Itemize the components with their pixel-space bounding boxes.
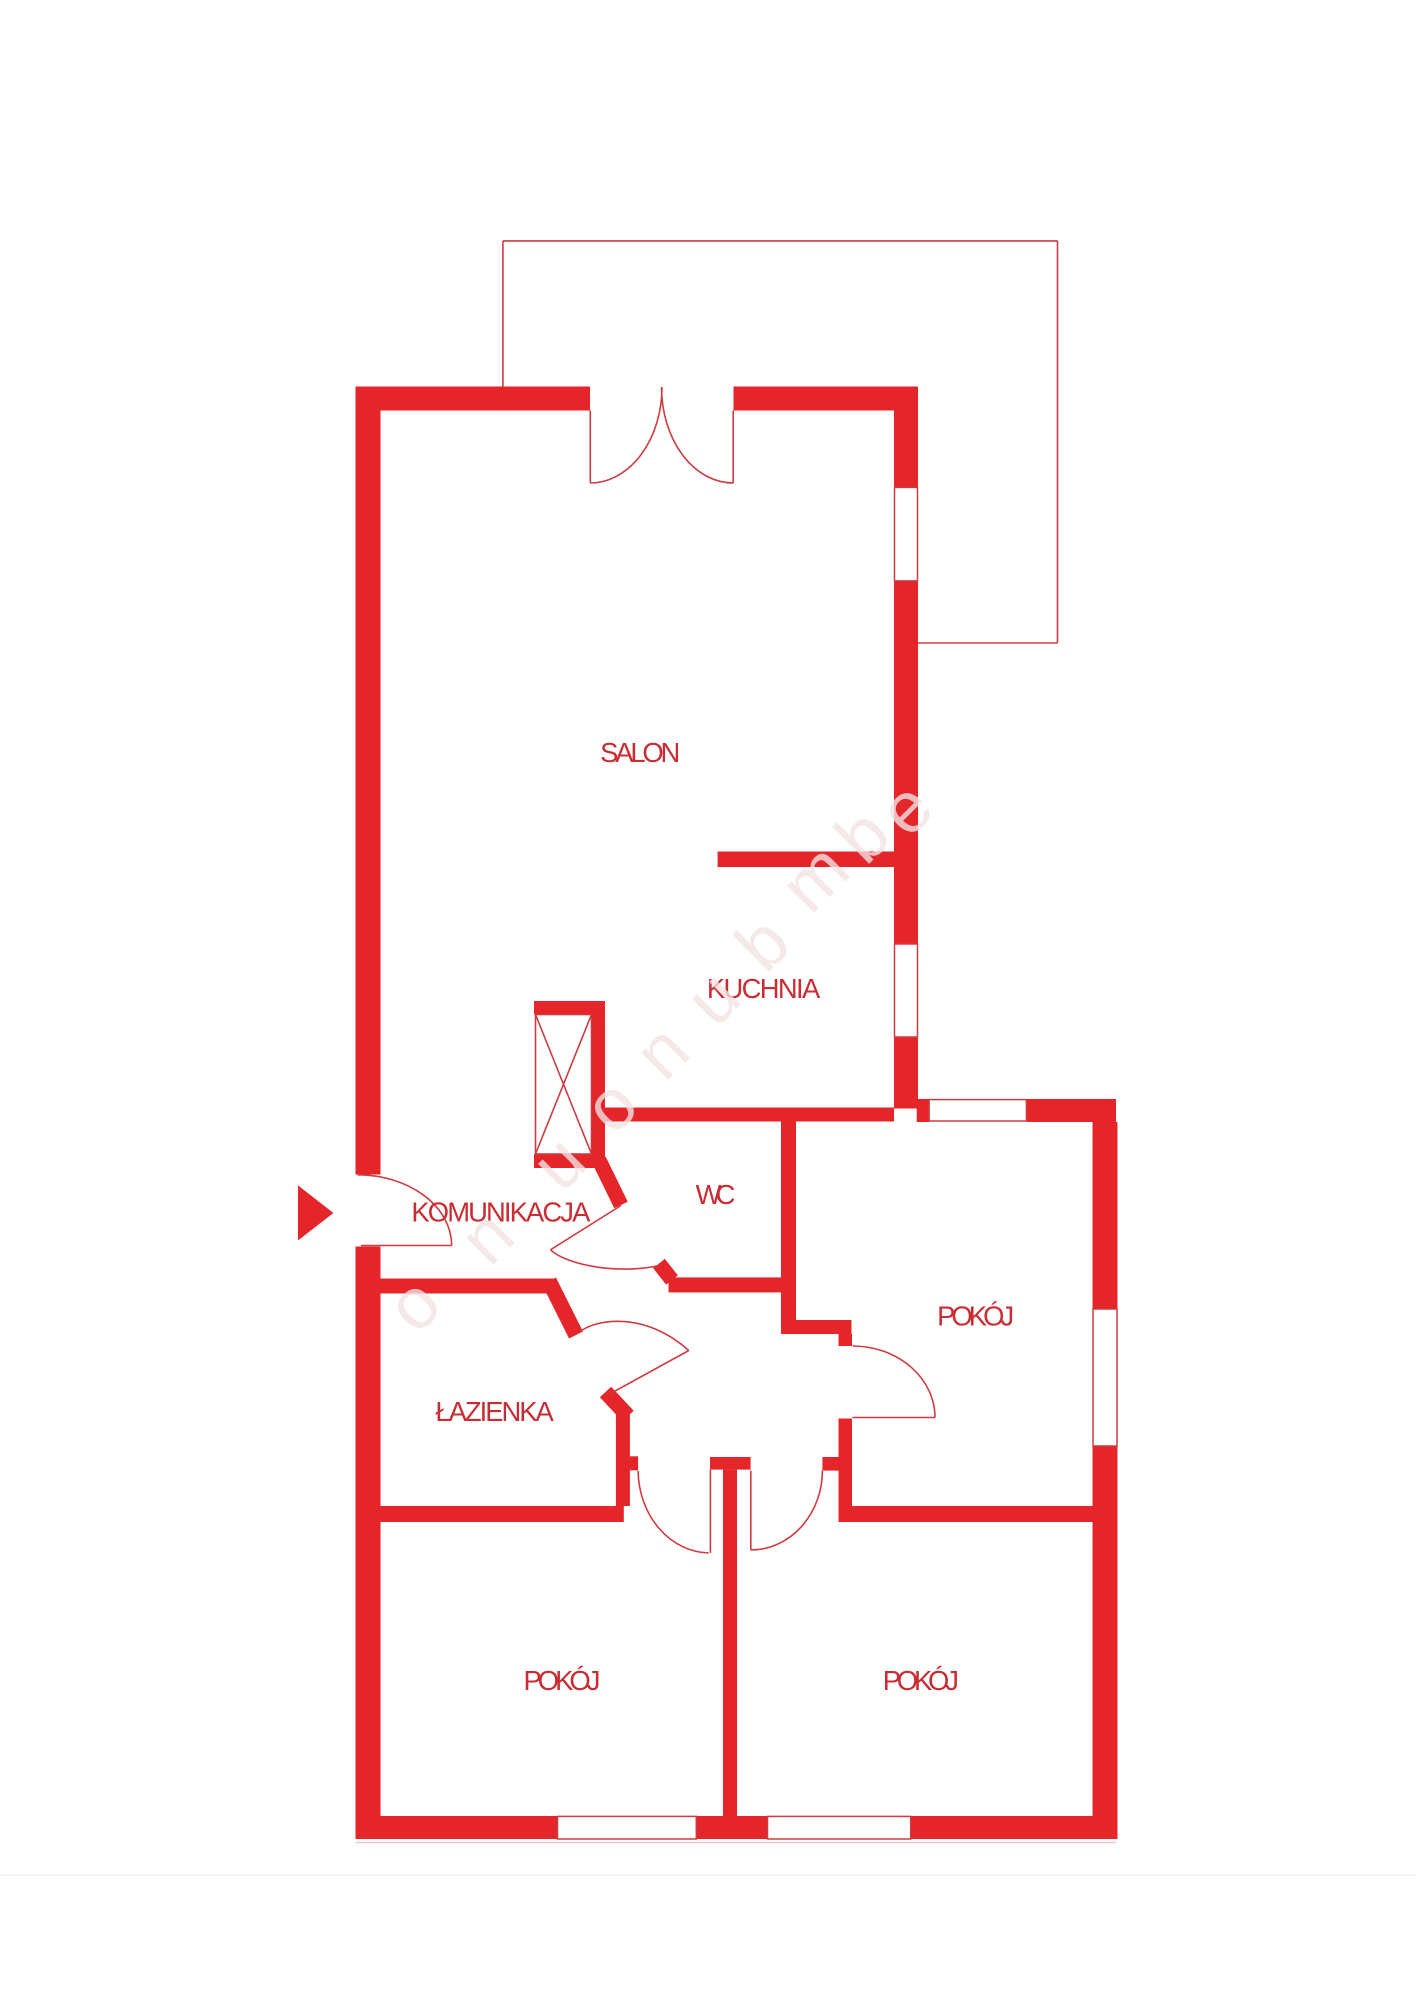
svg-text:ŁAZIENKA: ŁAZIENKA xyxy=(435,1396,554,1427)
svg-text:KOMUNIKACJA: KOMUNIKACJA xyxy=(411,1197,591,1228)
svg-text:POKÓJ: POKÓJ xyxy=(937,1300,1014,1331)
svg-text:POKÓJ: POKÓJ xyxy=(524,1665,601,1696)
svg-text:WC: WC xyxy=(696,1179,736,1210)
svg-text:SALON: SALON xyxy=(600,737,680,768)
svg-text:POKÓJ: POKÓJ xyxy=(883,1665,959,1696)
